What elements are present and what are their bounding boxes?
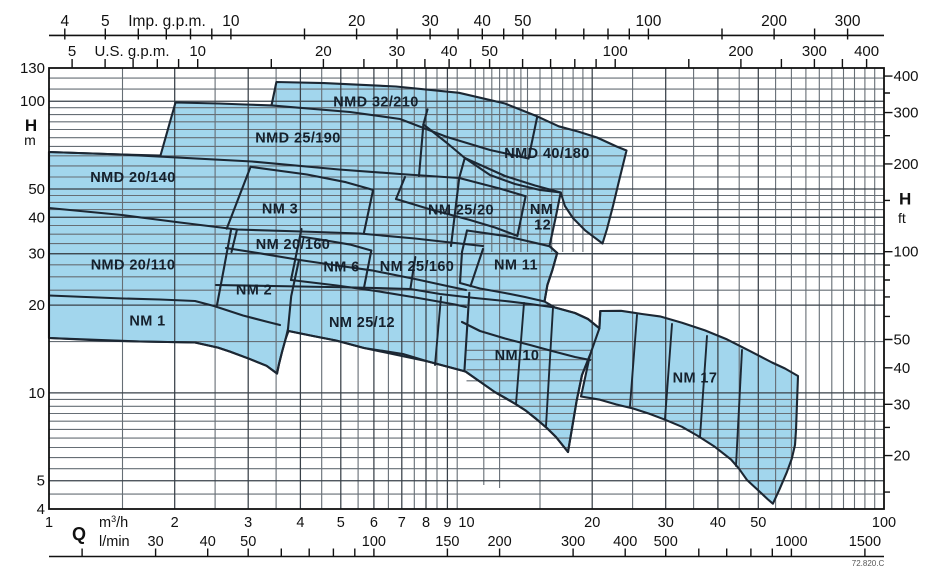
svg-text:4: 4: [60, 13, 69, 30]
svg-text:40: 40: [710, 515, 726, 531]
svg-text:300: 300: [835, 13, 861, 30]
svg-text:100: 100: [635, 13, 661, 30]
svg-text:m: m: [24, 132, 36, 148]
svg-text:200: 200: [487, 534, 511, 550]
svg-text:NMD 25/190: NMD 25/190: [255, 131, 340, 147]
svg-text:NM 10: NM 10: [495, 348, 540, 364]
svg-text:50: 50: [481, 43, 498, 60]
svg-text:100: 100: [603, 43, 628, 60]
svg-text:NM 25/20: NM 25/20: [428, 203, 494, 219]
svg-text:30: 30: [28, 246, 45, 263]
svg-text:200: 200: [894, 156, 919, 173]
svg-text:U.S. g.p.m.: U.S. g.p.m.: [94, 43, 169, 60]
svg-text:3: 3: [244, 515, 252, 531]
svg-text:300: 300: [561, 534, 585, 550]
svg-text:8: 8: [422, 515, 430, 531]
svg-text:7: 7: [398, 515, 406, 531]
svg-text:NM 17: NM 17: [673, 371, 718, 387]
svg-text:5: 5: [68, 43, 76, 60]
svg-text:300: 300: [802, 43, 827, 60]
svg-text:20: 20: [348, 13, 366, 30]
svg-text:100: 100: [20, 93, 45, 110]
svg-text:l/min: l/min: [99, 534, 130, 550]
svg-text:NMD 20/140: NMD 20/140: [90, 170, 175, 186]
svg-text:100: 100: [872, 515, 896, 531]
svg-text:NM 1: NM 1: [129, 314, 165, 330]
svg-text:4: 4: [296, 515, 304, 531]
svg-text:10: 10: [222, 13, 240, 30]
svg-text:NM: NM: [530, 202, 553, 218]
svg-text:ft: ft: [898, 210, 906, 226]
svg-text:200: 200: [761, 13, 787, 30]
svg-text:50: 50: [28, 181, 45, 198]
svg-text:20: 20: [28, 297, 45, 314]
svg-text:10: 10: [458, 515, 474, 531]
svg-text:12: 12: [534, 218, 551, 234]
svg-text:NM 2: NM 2: [236, 283, 272, 299]
svg-text:500: 500: [654, 534, 678, 550]
svg-text:200: 200: [728, 43, 753, 60]
svg-text:NM 25/160: NM 25/160: [380, 259, 455, 275]
svg-text:50: 50: [240, 534, 256, 550]
svg-text:400: 400: [894, 68, 919, 85]
svg-text:30: 30: [389, 43, 406, 60]
svg-text:50: 50: [750, 515, 766, 531]
svg-text:1: 1: [45, 515, 53, 531]
svg-text:Imp. g.p.m.: Imp. g.p.m.: [128, 13, 206, 30]
svg-text:1000: 1000: [775, 534, 807, 550]
svg-text:20: 20: [894, 448, 911, 465]
svg-text:50: 50: [514, 13, 532, 30]
svg-text:Q: Q: [72, 524, 86, 544]
svg-text:5: 5: [101, 13, 110, 30]
svg-text:30: 30: [894, 396, 911, 413]
svg-text:NM 20/160: NM 20/160: [256, 237, 331, 253]
svg-text:40: 40: [200, 534, 216, 550]
svg-text:10: 10: [28, 385, 45, 402]
svg-text:9: 9: [443, 515, 451, 531]
svg-text:10: 10: [189, 43, 206, 60]
svg-text:100: 100: [362, 534, 386, 550]
svg-text:NM 6: NM 6: [323, 260, 359, 276]
svg-text:H: H: [899, 190, 911, 209]
svg-text:NM 11: NM 11: [494, 258, 538, 274]
svg-text:130: 130: [20, 60, 45, 77]
svg-text:20: 20: [315, 43, 332, 60]
svg-text:NM 25/12: NM 25/12: [329, 315, 395, 331]
svg-text:40: 40: [474, 13, 492, 30]
svg-text:72.820.C: 72.820.C: [852, 559, 885, 568]
svg-text:30: 30: [148, 534, 164, 550]
svg-text:NM 3: NM 3: [262, 202, 298, 218]
svg-text:150: 150: [435, 534, 459, 550]
svg-text:5: 5: [337, 515, 345, 531]
svg-text:NMD 40/180: NMD 40/180: [504, 146, 589, 162]
svg-text:20: 20: [584, 515, 600, 531]
svg-text:40: 40: [441, 43, 458, 60]
svg-text:100: 100: [894, 244, 919, 261]
svg-text:30: 30: [421, 13, 439, 30]
svg-text:1500: 1500: [849, 534, 881, 550]
svg-text:5: 5: [37, 473, 45, 490]
svg-text:50: 50: [894, 332, 911, 349]
svg-text:6: 6: [370, 515, 378, 531]
svg-text:400: 400: [854, 43, 879, 60]
svg-text:4: 4: [37, 501, 45, 518]
svg-text:NMD 20/110: NMD 20/110: [91, 258, 176, 274]
svg-text:40: 40: [28, 209, 45, 226]
svg-text:30: 30: [658, 515, 674, 531]
svg-text:NMD 32/210: NMD 32/210: [333, 95, 418, 111]
svg-text:40: 40: [894, 360, 911, 377]
svg-text:300: 300: [894, 105, 919, 122]
svg-text:2: 2: [171, 515, 179, 531]
svg-text:400: 400: [613, 534, 637, 550]
